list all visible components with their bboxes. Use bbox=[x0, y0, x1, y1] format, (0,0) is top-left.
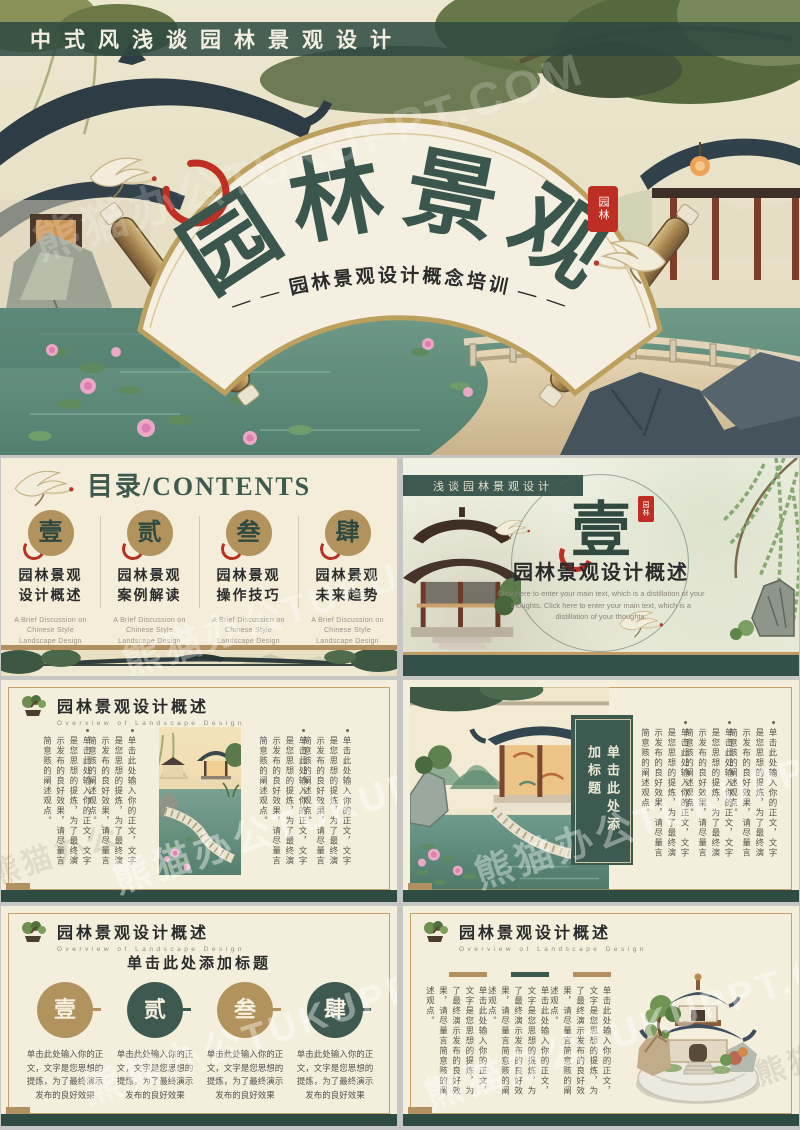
item-title-line1: 园林景观 bbox=[298, 567, 397, 587]
slide-cover[interactable]: 园林景观 — — 园林景观设计概念培训 — — 中式风浅谈园林景观设计 园林 熊… bbox=[0, 0, 800, 455]
title-box: 单击此处添加标题 bbox=[571, 715, 633, 865]
item-number-badge: 肆 bbox=[325, 510, 371, 556]
cover-illustration: 园林景观 — — 园林景观设计概念培训 — — bbox=[0, 0, 800, 455]
red-seal-stamp: 园林 bbox=[638, 496, 654, 522]
bottom-band bbox=[1, 890, 397, 902]
bonsai-icon bbox=[19, 921, 49, 943]
slide-content-four-points[interactable]: 园林景观设计概述 Overview of Landscape Design 单击… bbox=[1, 906, 397, 1126]
bonsai-icon bbox=[19, 695, 49, 717]
slide-content-vertical-text[interactable]: 园林景观设计概述 Overview of Landscape Design bbox=[1, 680, 397, 902]
template-preview-page: 园林景观 — — 园林景观设计概念培训 — — 中式风浅谈园林景观设计 园林 熊… bbox=[0, 0, 800, 1130]
cover-top-banner: 中式风浅谈园林景观设计 bbox=[0, 22, 800, 56]
accent-bar bbox=[573, 972, 611, 977]
item-number-badge: 叁 bbox=[226, 510, 272, 556]
tan-accent bbox=[6, 1107, 30, 1114]
number-circle: 贰 bbox=[127, 982, 183, 1038]
vertical-body-text: 单击此处输入你的正文，文字是您思想的提炼，为了最终演示发布的良好效果，请尽量言简… bbox=[509, 986, 551, 1104]
divider bbox=[199, 516, 200, 608]
tan-accent bbox=[408, 883, 432, 890]
section-body-text: Click here to enter your main text, whic… bbox=[495, 588, 707, 623]
item-title-line2: 案例解读 bbox=[100, 587, 199, 607]
contents-item[interactable]: 壹 园林景观 设计概述 A Brief Discussion on Chines… bbox=[1, 510, 100, 647]
header-subtitle: Overview of Landscape Design bbox=[459, 946, 647, 953]
contents-item[interactable]: 肆 园林景观 未来趋势 A Brief Discussion on Chines… bbox=[298, 510, 397, 647]
contents-item[interactable]: 叁 园林景观 操作技巧 A Brief Discussion on Chines… bbox=[199, 510, 298, 647]
item-number-badge: 贰 bbox=[127, 510, 173, 556]
item-subtitle-en: A Brief Discussion on Chinese Style Land… bbox=[107, 616, 192, 648]
circle-tail bbox=[361, 1008, 371, 1011]
number-circle: 壹 bbox=[37, 982, 93, 1038]
divider bbox=[298, 516, 299, 608]
bottom-band bbox=[403, 1114, 799, 1126]
header-title: 园林景观设计概述 bbox=[57, 919, 245, 943]
content-header: 园林景观设计概述 Overview of Landscape Design bbox=[421, 919, 647, 953]
bottom-band bbox=[403, 890, 799, 902]
item-number-badge: 壹 bbox=[28, 510, 74, 556]
point-text: 单击此处输入你的正文，文字是您思想的提炼，为了最终演示发布的良好效果 bbox=[23, 1048, 107, 1102]
header-title: 园林景观设计概述 bbox=[459, 919, 647, 943]
body-title: 单击此处添加标题 bbox=[1, 952, 397, 973]
accent-bar bbox=[449, 972, 487, 977]
number-circle: 叁 bbox=[217, 982, 273, 1038]
item-title-line1: 园林景观 bbox=[1, 567, 100, 587]
number-circle: 肆 bbox=[307, 982, 363, 1038]
circle-tail bbox=[271, 1008, 281, 1011]
point-text: 单击此处输入你的正文，文字是您思想的提炼，为了最终演示发布的良好效果 bbox=[293, 1048, 377, 1102]
red-seal-stamp: 园林 bbox=[588, 186, 618, 232]
header-title: 园林景观设计概述 bbox=[57, 693, 245, 717]
point-text: 单击此处输入你的正文，文字是您思想的提炼，为了最终演示发布的良好效果 bbox=[113, 1048, 197, 1102]
section-title: 园林景观设计概述 bbox=[403, 556, 799, 585]
circle-tail bbox=[91, 1008, 101, 1011]
item-subtitle-en: A Brief Discussion on Chinese Style Land… bbox=[305, 616, 390, 648]
slide-section-one[interactable]: 浅谈园林景观设计 壹 园林 园林景观设计概述 Click here to ent… bbox=[403, 458, 799, 676]
item-title-line1: 园林景观 bbox=[199, 567, 298, 587]
header-subtitle: Overview of Landscape Design bbox=[57, 946, 245, 953]
cover-banner-text: 中式风浅谈园林景观设计 bbox=[30, 24, 404, 54]
item-title-line2: 操作技巧 bbox=[199, 587, 298, 607]
contents-title: 目录/CONTENTS bbox=[1, 466, 397, 503]
vertical-body-text: 单击此处输入你的正文，文字是您思想的提炼，为了最终演示发布的良好效果，请尽量言简… bbox=[447, 986, 489, 1104]
seal-text: 园林 bbox=[641, 501, 651, 517]
circle-tail bbox=[181, 1008, 191, 1011]
garden-strip-illustration bbox=[1, 650, 397, 676]
slide-contents[interactable]: 目录/CONTENTS 壹 园林景观 设计概述 A Brief Discussi… bbox=[1, 458, 397, 676]
item-subtitle-en: A Brief Discussion on Chinese Style Land… bbox=[206, 616, 291, 648]
tan-accent bbox=[6, 883, 30, 890]
item-title-line2: 设计概述 bbox=[1, 587, 100, 607]
title-box-text: 单击此处添加标题 bbox=[584, 745, 622, 837]
bonsai-icon bbox=[421, 921, 451, 943]
item-subtitle-en: A Brief Discussion on Chinese Style Land… bbox=[8, 616, 93, 648]
bottom-band bbox=[403, 655, 799, 676]
item-title-line1: 园林景观 bbox=[100, 567, 199, 587]
accent-bar bbox=[511, 972, 549, 977]
content-header: 园林景观设计概述 Overview of Landscape Design bbox=[19, 693, 245, 727]
contents-item[interactable]: 贰 园林景观 案例解读 A Brief Discussion on Chines… bbox=[100, 510, 199, 647]
vertical-body-text: 单击此处输入你的正文，文字是您思想的提炼，为了最终演示发布的良好效果，请尽量言简… bbox=[571, 986, 613, 1104]
seal-text: 园林 bbox=[595, 196, 611, 222]
vertical-body-text: 单击此处输入你的正文，文字是您思想的提炼，为了最终演示发布的良好效果，请尽量言简… bbox=[739, 728, 779, 860]
vertical-body-text: 单击此处输入你的正文，文字是您思想的提炼，为了最终演示发布的良好效果，请尽量言简… bbox=[313, 736, 353, 866]
vertical-body-text: 单击此处输入你的正文，文字是您思想的提炼，为了最终演示发布的良好效果，请尽量言简… bbox=[98, 736, 138, 866]
item-title-line2: 未来趋势 bbox=[298, 587, 397, 607]
tan-accent bbox=[408, 1107, 432, 1114]
header-subtitle: Overview of Landscape Design bbox=[57, 720, 245, 727]
divider bbox=[100, 516, 101, 608]
point-text: 单击此处输入你的正文，文字是您思想的提炼，为了最终演示发布的良好效果 bbox=[203, 1048, 287, 1102]
content-header: 园林景观设计概述 Overview of Landscape Design bbox=[19, 919, 245, 953]
slide-content-image-left[interactable]: 单击此处添加标题 单击此处输入你的正文，文字是您思想的提炼，为了最终演示发布的良… bbox=[403, 680, 799, 902]
slide-content-miniature[interactable]: 园林景观设计概述 Overview of Landscape Design 单击… bbox=[403, 906, 799, 1126]
bottom-band bbox=[1, 1114, 397, 1126]
